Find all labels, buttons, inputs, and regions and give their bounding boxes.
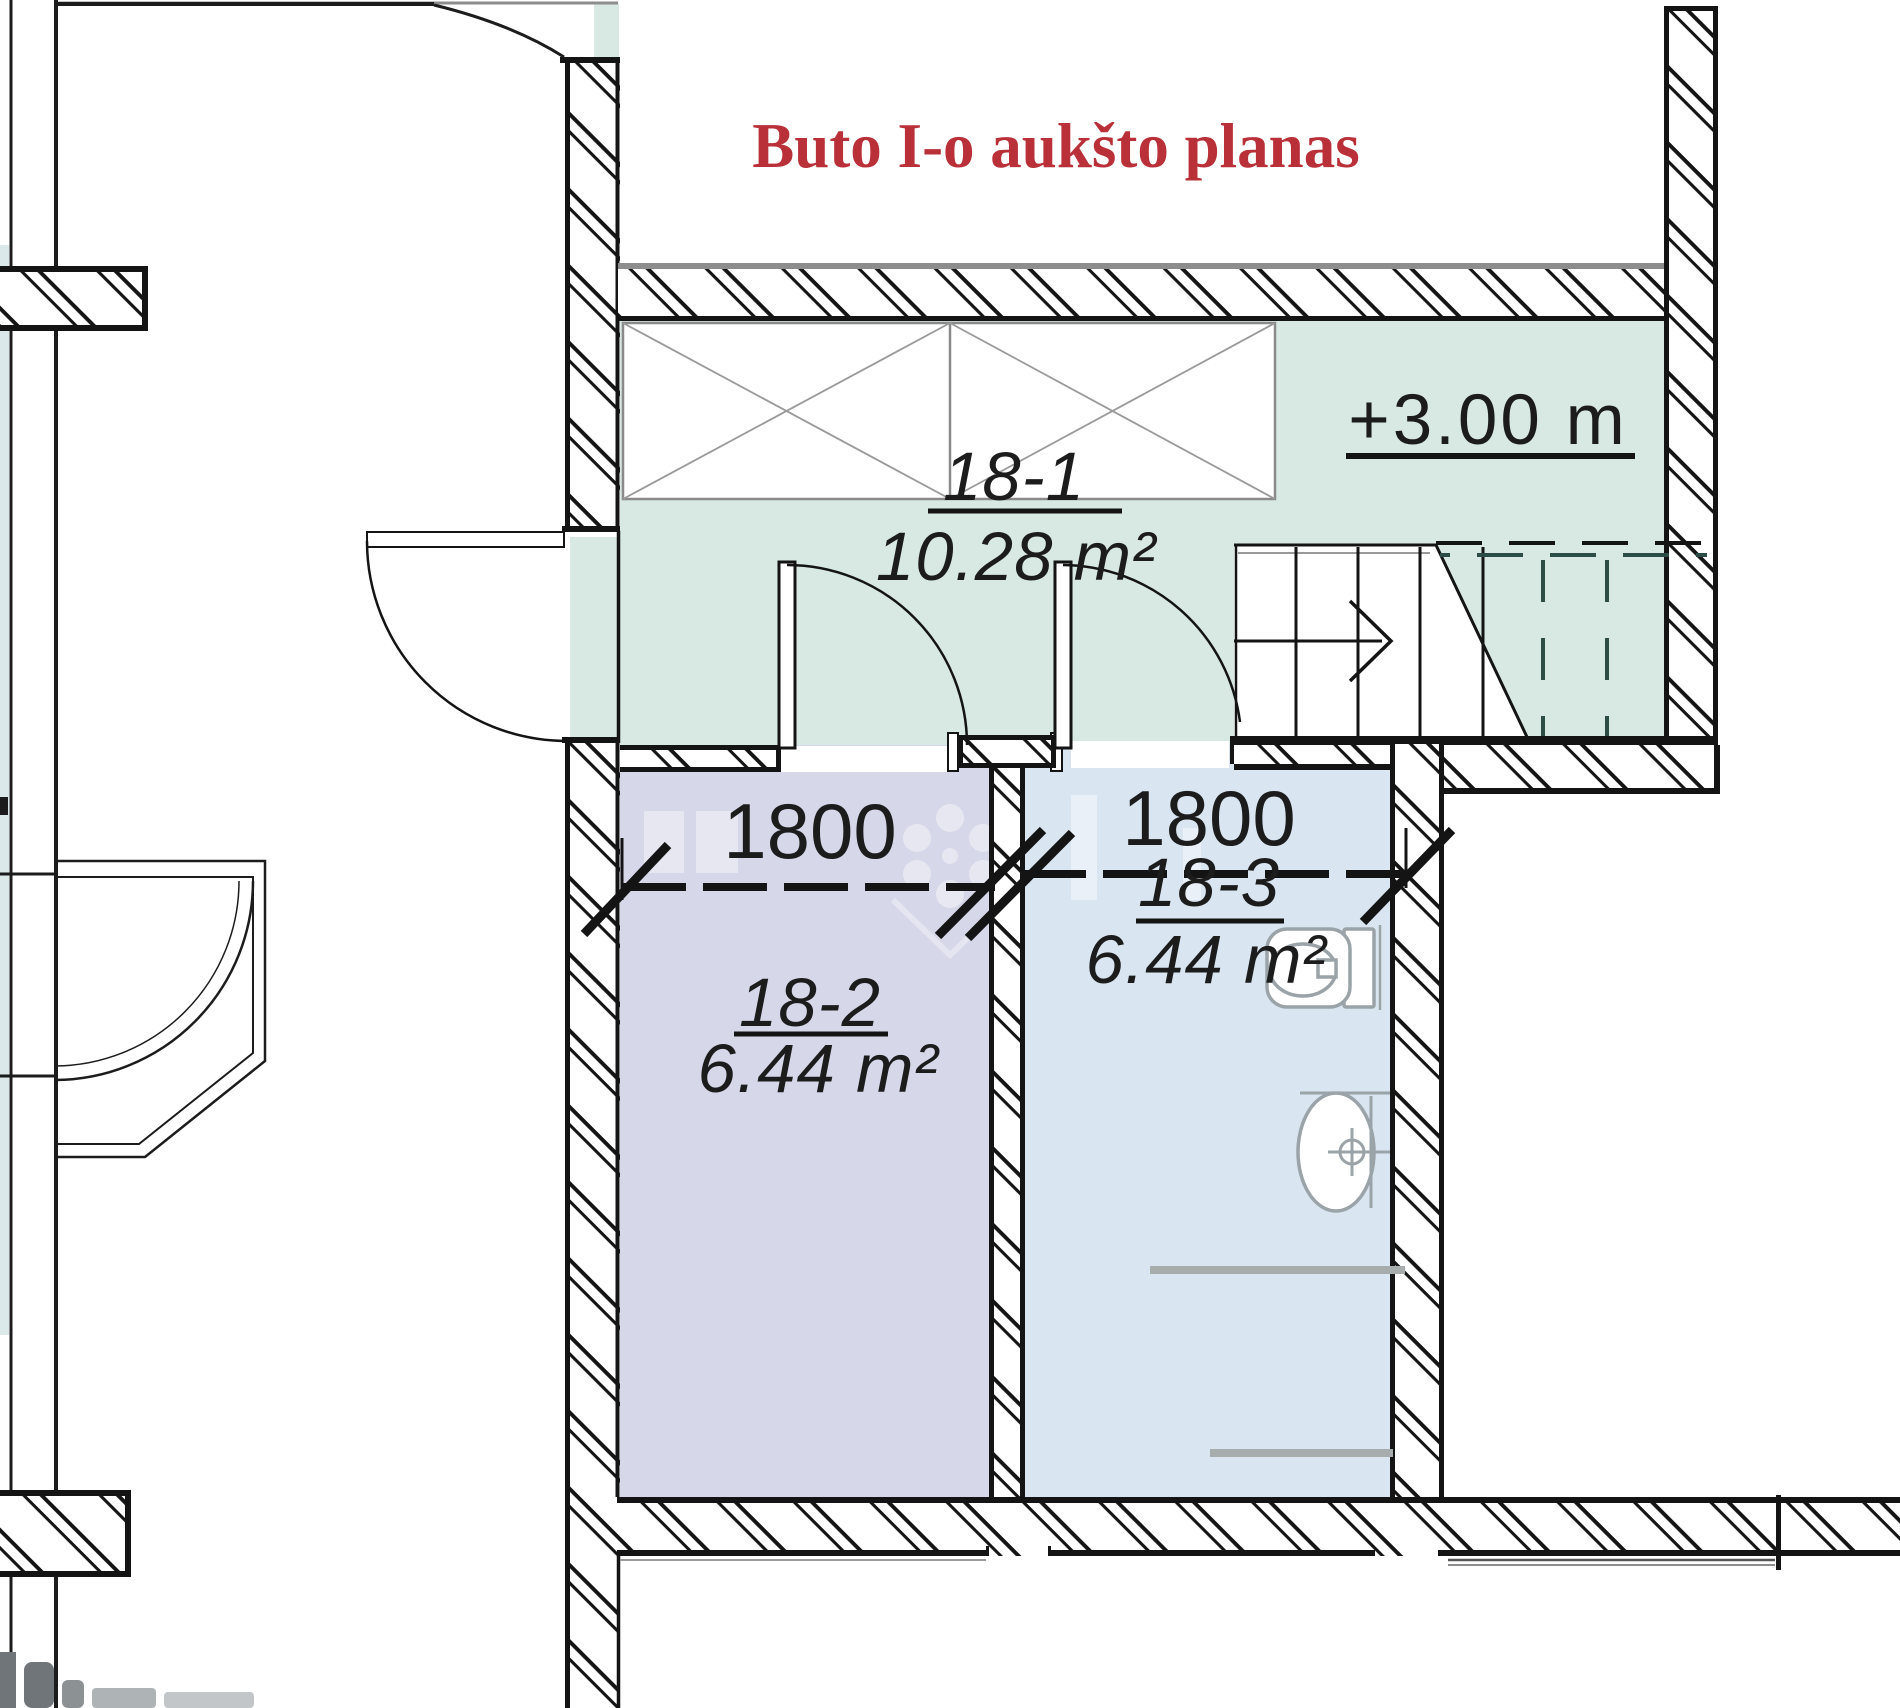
svg-text:18-3: 18-3: [1138, 844, 1280, 921]
svg-text:18-1: 18-1: [943, 438, 1085, 515]
svg-text:10.28 m²: 10.28 m²: [876, 518, 1157, 595]
svg-text:1800: 1800: [723, 787, 897, 875]
svg-text:6.44 m²: 6.44 m²: [1086, 921, 1328, 998]
svg-text:+3.00 m: +3.00 m: [1348, 381, 1628, 460]
svg-text:6.44 m²: 6.44 m²: [698, 1030, 940, 1107]
svg-text:Buto I-o aukšto planas: Buto I-o aukšto planas: [752, 111, 1359, 181]
